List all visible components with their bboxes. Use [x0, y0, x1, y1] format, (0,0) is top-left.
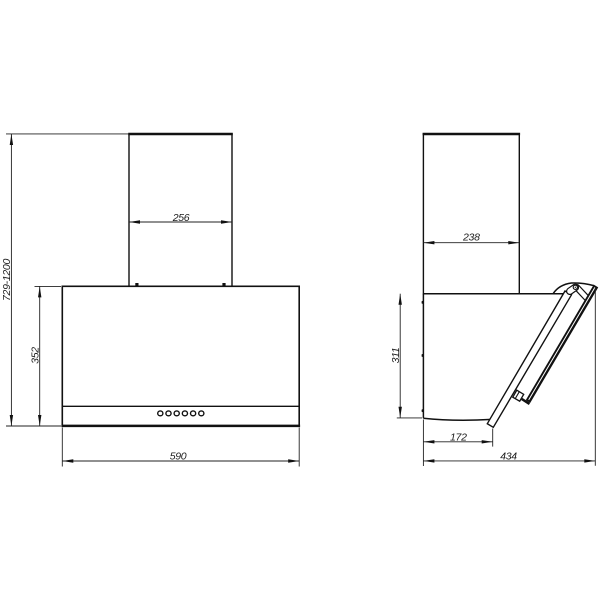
svg-text:172: 172: [450, 431, 467, 443]
svg-text:590: 590: [170, 450, 187, 462]
svg-text:238: 238: [462, 231, 480, 243]
svg-text:311: 311: [390, 348, 402, 364]
svg-text:352: 352: [30, 347, 42, 364]
svg-text:729-1200: 729-1200: [1, 259, 13, 301]
svg-text:256: 256: [172, 212, 190, 224]
svg-text:434: 434: [500, 450, 517, 462]
